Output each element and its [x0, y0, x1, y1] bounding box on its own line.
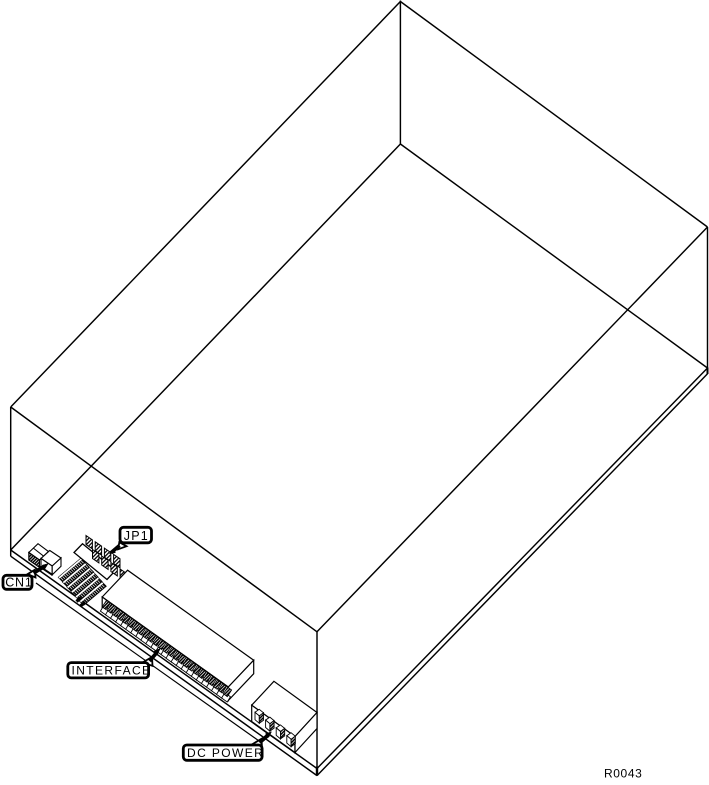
svg-text:R0043: R0043: [604, 767, 642, 781]
svg-text:DC POWER: DC POWER: [187, 746, 264, 760]
svg-text:INTERFACE: INTERFACE: [72, 664, 152, 678]
svg-text:JP1: JP1: [124, 529, 149, 543]
svg-text:CN1: CN1: [5, 576, 32, 590]
